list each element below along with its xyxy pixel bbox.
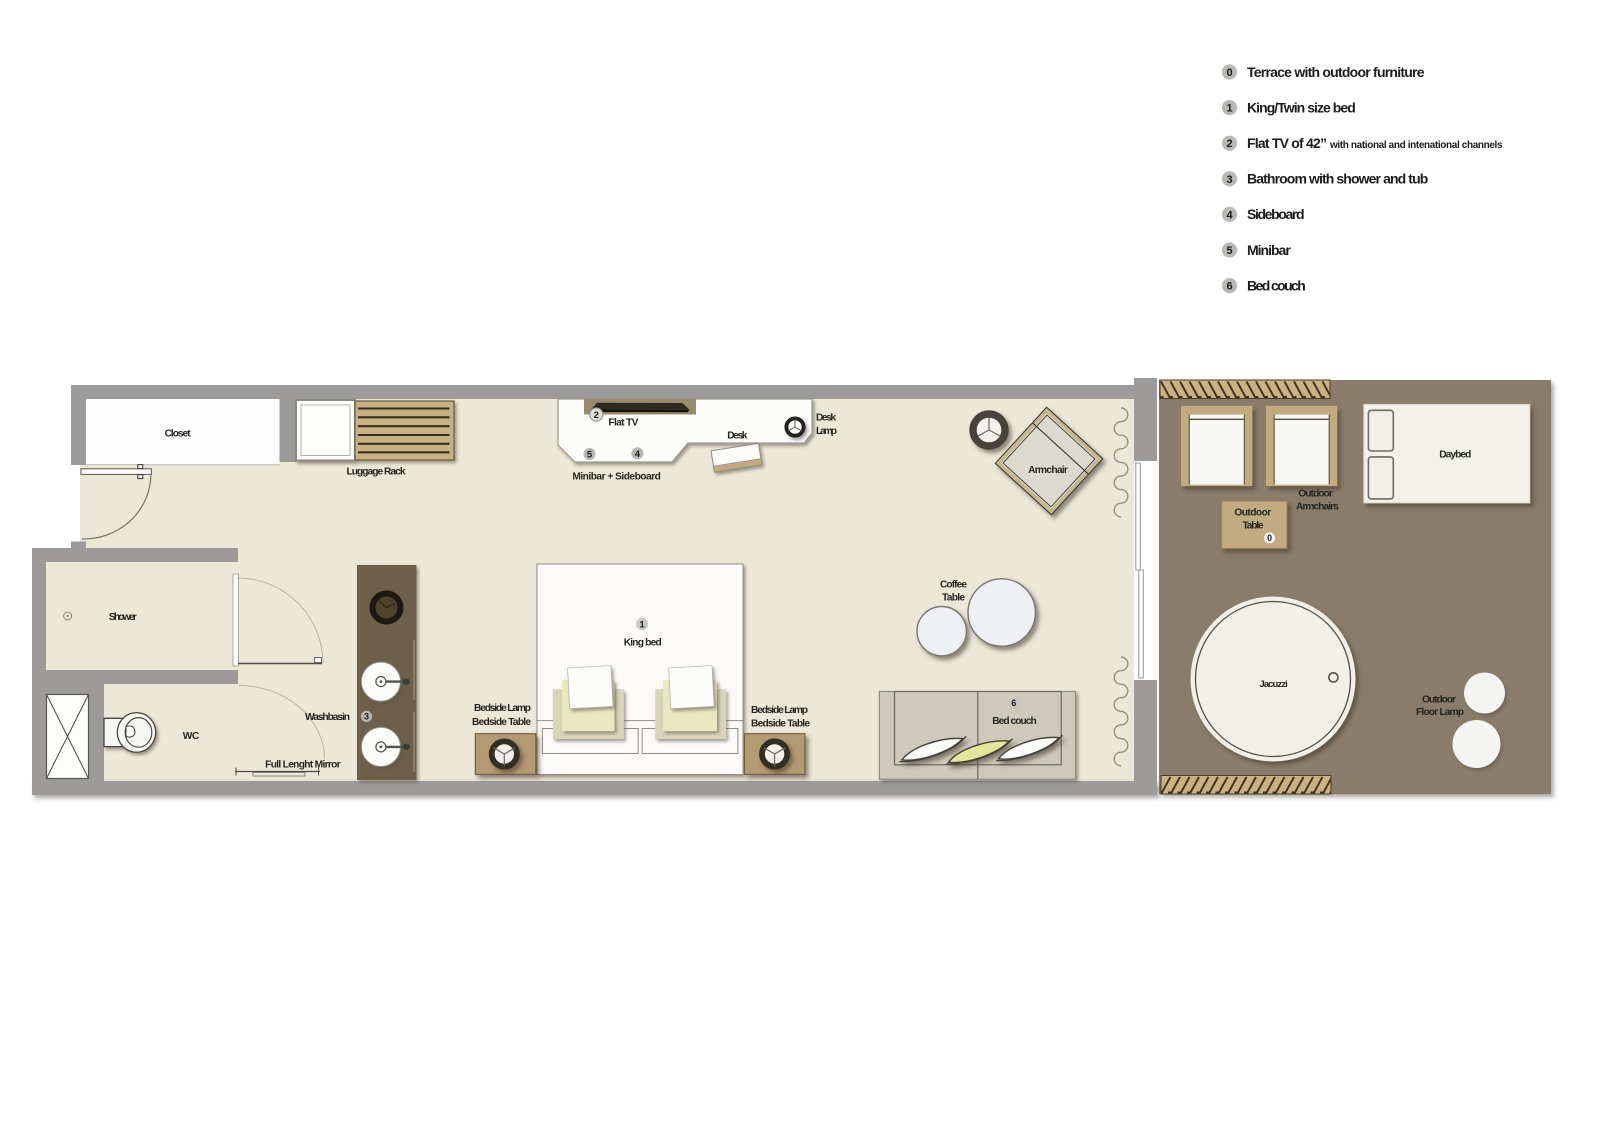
svg-text:6: 6 [1226,281,1232,293]
svg-text:2: 2 [1226,138,1232,150]
svg-text:Desk: Desk [727,431,748,442]
svg-text:2: 2 [594,410,599,421]
svg-text:Closet: Closet [165,428,192,439]
svg-text:5: 5 [1226,245,1232,257]
svg-text:Bedside Table: Bedside Table [472,717,531,728]
svg-text:Bed couch: Bed couch [1247,277,1306,293]
svg-text:Minibar + Sideboard: Minibar + Sideboard [572,472,661,483]
svg-text:Terrace with outdoor furniture: Terrace with outdoor furniture [1247,64,1425,80]
svg-text:Floor Lamp: Floor Lamp [1416,707,1464,718]
svg-text:3: 3 [1226,174,1232,186]
svg-text:5: 5 [587,449,593,460]
svg-text:0: 0 [1226,67,1232,79]
svg-text:Coffee: Coffee [940,580,967,591]
svg-text:Flat TV: Flat TV [608,418,638,429]
svg-text:Luggage Rack: Luggage Rack [347,467,406,478]
svg-text:Armchairs: Armchairs [1296,502,1339,513]
svg-text:Outdoor: Outdoor [1234,508,1271,519]
svg-text:Minibar: Minibar [1247,242,1291,258]
svg-text:Bathroom with shower and tub: Bathroom with shower and tub [1247,171,1428,187]
svg-text:Outdoor: Outdoor [1422,695,1456,706]
svg-text:Armchair: Armchair [1028,465,1068,476]
svg-text:Bed couch: Bed couch [992,716,1037,727]
svg-text:King/Twin size bed: King/Twin size bed [1247,99,1356,115]
svg-text:Lamp: Lamp [816,426,837,437]
svg-text:Table: Table [1243,520,1264,531]
svg-text:Table: Table [942,593,965,604]
svg-text:WC: WC [183,731,200,742]
svg-text:Washbasin: Washbasin [305,712,350,723]
svg-text:4: 4 [1226,209,1233,221]
svg-text:Bedside Table: Bedside Table [751,719,810,730]
svg-text:Daybed: Daybed [1439,450,1471,461]
svg-text:Bedside Lamp: Bedside Lamp [751,705,808,716]
svg-text:Shower: Shower [109,612,137,623]
svg-text:Jacuzzi: Jacuzzi [1259,679,1288,690]
svg-text:with national and intenational: with national and intenational channels [1329,140,1503,151]
svg-text:Sideboard: Sideboard [1247,206,1305,222]
svg-text:1: 1 [639,619,645,630]
svg-text:Full Lenght Mirror: Full Lenght Mirror [265,760,341,771]
svg-text:0: 0 [1267,533,1272,543]
svg-text:Flat TV of 42”: Flat TV of 42” [1247,135,1327,151]
svg-text:6: 6 [1011,698,1016,708]
svg-text:3: 3 [364,712,369,722]
svg-text:Outdoor: Outdoor [1298,488,1333,499]
svg-text:Desk: Desk [816,413,836,424]
svg-text:King bed: King bed [624,637,662,648]
svg-text:Bedside Lamp: Bedside Lamp [474,703,531,714]
svg-text:1: 1 [1226,103,1232,115]
svg-text:4: 4 [635,449,641,460]
